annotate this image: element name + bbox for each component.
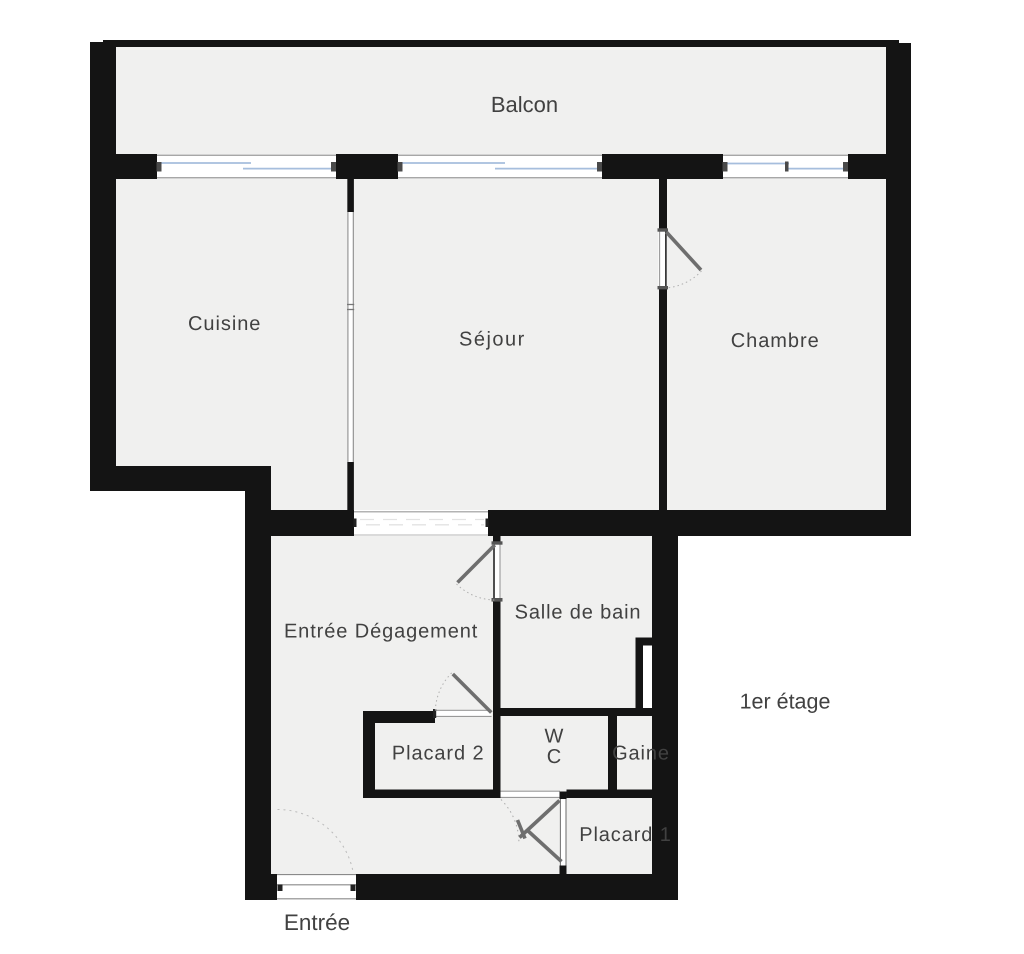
svg-text:Placard 1: Placard 1 <box>579 824 672 846</box>
svg-text:Balcon: Balcon <box>491 92 558 117</box>
svg-text:Placard 2: Placard 2 <box>392 743 485 765</box>
svg-text:1er étage: 1er étage <box>740 690 831 714</box>
svg-text:C: C <box>547 746 561 768</box>
svg-text:Salle de bain: Salle de bain <box>515 601 642 623</box>
svg-text:W: W <box>545 726 564 748</box>
svg-text:Cuisine: Cuisine <box>188 313 261 335</box>
svg-text:Entrée Dégagement: Entrée Dégagement <box>284 621 478 643</box>
svg-text:Gaine: Gaine <box>612 743 670 765</box>
svg-text:Séjour: Séjour <box>459 329 526 351</box>
svg-text:Chambre: Chambre <box>731 330 820 352</box>
svg-text:Entrée: Entrée <box>284 910 350 935</box>
